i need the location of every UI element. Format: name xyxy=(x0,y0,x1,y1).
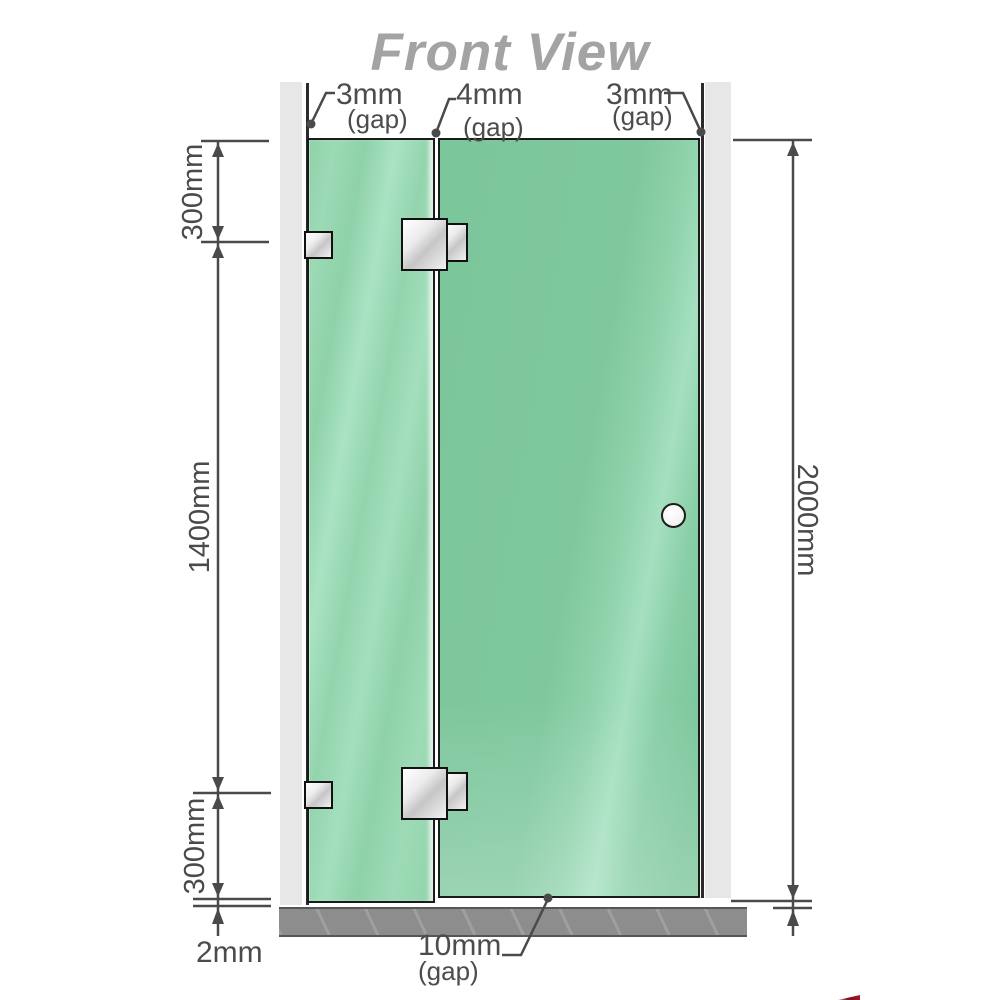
wall-bracket-top xyxy=(304,231,333,259)
logo-fragment xyxy=(838,995,860,1000)
dim-label-left-top: 300mm xyxy=(178,122,208,262)
dim-label-left-bottom: 300mm xyxy=(180,776,210,916)
gap-label-bottom-note: (gap) xyxy=(418,956,479,987)
gap-label-middle-value: 4mm xyxy=(456,78,523,112)
floor-base xyxy=(279,907,747,937)
right-wall-channel xyxy=(705,82,731,898)
front-view-diagram: Front View xyxy=(0,0,1000,1000)
door-knob xyxy=(661,503,686,528)
hinge-bottom-main-plate xyxy=(401,767,448,820)
gap-label-floor-value: 2mm xyxy=(196,936,263,970)
dim-label-left-middle: 1400mm xyxy=(185,447,215,587)
dim-label-right-overall: 2000mm xyxy=(792,450,822,590)
gap-label-left-note: (gap) xyxy=(347,104,408,135)
wall-bracket-bottom xyxy=(304,781,333,809)
gap-label-right-note: (gap) xyxy=(612,101,673,132)
gap-label-middle-note: (gap) xyxy=(463,112,524,143)
left-wall-channel xyxy=(280,82,302,905)
page-title: Front View xyxy=(300,22,720,82)
right-wall-edge-line xyxy=(701,83,704,898)
hinge-top-main-plate xyxy=(401,218,448,271)
